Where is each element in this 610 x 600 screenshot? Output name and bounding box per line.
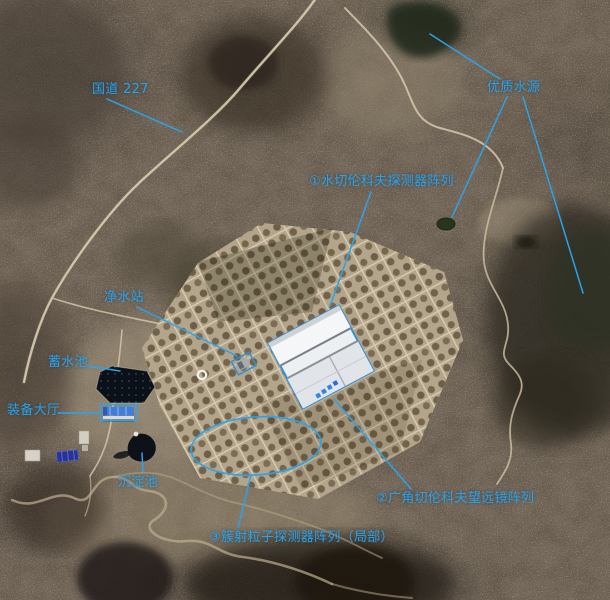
water-source-pond — [437, 218, 455, 230]
label-water-station: 净水站 — [104, 291, 144, 304]
label-wfcta: ②广角切伦科夫望远镜阵列 — [376, 492, 534, 505]
satellite-image-canvas[interactable]: 国道 227 优质水源 ①水切伦科夫探测器阵列 净水站 蓄水池 装备大厅 沉淀池… — [0, 0, 610, 600]
label-equipment-hall: 装备大厅 — [7, 404, 60, 417]
white-building — [25, 450, 40, 461]
label-reservoir: 蓄水池 — [48, 356, 88, 369]
equipment-hall — [101, 405, 138, 422]
leader-sedimentation — [142, 453, 143, 472]
label-shower-array: ③簇射粒子探测器阵列（局部） — [209, 531, 394, 544]
label-water-source: 优质水源 — [487, 81, 540, 94]
small-white-structure — [134, 432, 139, 437]
white-circle-tank — [198, 371, 206, 379]
label-sedimentation: 沉淀池 — [118, 476, 158, 489]
tower-structure — [79, 431, 89, 444]
reservoir-pond — [96, 366, 155, 403]
label-highway-227: 国道 227 — [92, 83, 149, 96]
label-wcda: ①水切伦科夫探测器阵列 — [309, 175, 454, 188]
